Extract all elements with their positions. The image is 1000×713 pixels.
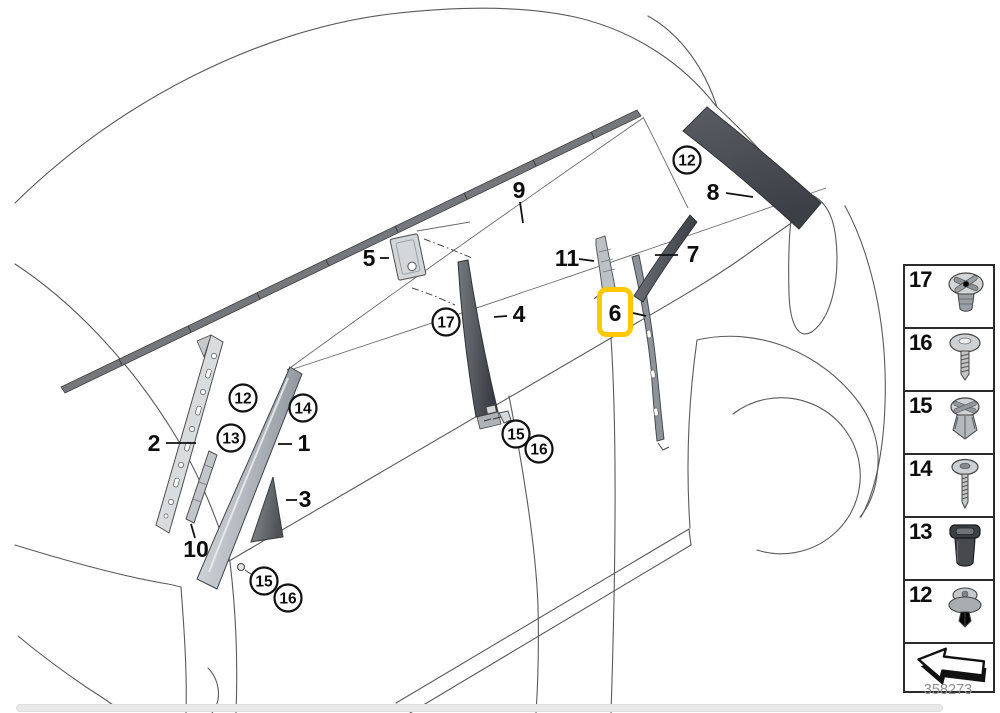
callout-circled-15-a-pillar[interactable]: 15 <box>251 568 278 595</box>
callout-5[interactable]: 5 <box>363 245 376 271</box>
legend-number: 12 <box>909 582 931 608</box>
front-door-cut <box>230 562 237 713</box>
expanding-rivet-icon <box>936 393 992 449</box>
legend-item-13[interactable]: 13 <box>905 518 993 581</box>
rear-door-cut <box>611 338 615 713</box>
callout-circled-13[interactable]: 13 <box>218 425 245 452</box>
svg-text:12: 12 <box>234 391 251 408</box>
push-rivet-icon <box>936 582 992 638</box>
callout-circled-14[interactable]: 14 <box>290 395 317 422</box>
svg-text:16: 16 <box>279 591 297 608</box>
svg-text:17: 17 <box>437 315 454 332</box>
legend-number: 15 <box>909 393 931 419</box>
grommet-nut-icon <box>936 267 992 323</box>
rear-wheel-arch <box>733 398 860 554</box>
legend-number: 13 <box>909 519 931 545</box>
legend-item-16[interactable]: 16 <box>905 329 993 392</box>
exploded-parts-drawing: 1 2 3 4 5 6 7 8 9 10 11 12 12 13 <box>0 0 1000 713</box>
rear-bumper-edge <box>845 206 885 517</box>
washer-head-screw-icon <box>936 330 992 386</box>
legend-number: 14 <box>909 456 931 482</box>
far-beltline <box>287 188 826 371</box>
rocker-sill <box>396 529 691 713</box>
callout-4[interactable]: 4 <box>513 301 526 327</box>
callout-circled-16-b-pillar[interactable]: 16 <box>526 436 553 463</box>
car-body-outline <box>15 8 885 713</box>
rubber-plug-icon <box>936 519 992 575</box>
callout-circled-16-a-pillar[interactable]: 16 <box>275 585 302 612</box>
callout-2[interactable]: 2 <box>148 430 161 456</box>
part-8-c-pillar-trim[interactable] <box>683 107 821 229</box>
legend-number: 17 <box>909 267 931 293</box>
part-2-bracket[interactable] <box>156 335 223 533</box>
legend-number: 16 <box>909 330 931 356</box>
callout-circled-12-a-pillar[interactable]: 12 <box>230 385 257 412</box>
svg-text:13: 13 <box>222 431 240 448</box>
callout-circled-15-b-pillar[interactable]: 15 <box>503 421 530 448</box>
parts-diagram-page: 1 2 3 4 5 6 7 8 9 10 11 12 12 13 <box>0 0 1000 713</box>
fasteners-legend: 17 16 15 <box>903 264 995 693</box>
rear-fender <box>688 336 878 528</box>
svg-text:15: 15 <box>507 427 525 444</box>
svg-text:16: 16 <box>530 442 548 459</box>
svg-text:12: 12 <box>678 153 695 170</box>
legend-item-14[interactable]: 14 <box>905 455 993 518</box>
horizontal-scrollbar[interactable] <box>16 704 943 712</box>
callout-9[interactable]: 9 <box>513 177 526 203</box>
legend-item-12[interactable]: 12 <box>905 581 993 644</box>
callout-8[interactable]: 8 <box>707 179 720 205</box>
part-4-b-pillar-trim[interactable] <box>458 260 501 429</box>
callout-circled-12-roof[interactable]: 12 <box>674 147 701 174</box>
drawing-number: 358273 <box>898 682 998 698</box>
callout-6-highlighted[interactable]: 6 <box>609 300 622 326</box>
callout-10[interactable]: 10 <box>183 536 209 562</box>
screw-with-washer-icon <box>936 456 992 512</box>
callout-1[interactable]: 1 <box>298 430 311 456</box>
svg-text:15: 15 <box>255 574 273 591</box>
svg-text:14: 14 <box>294 401 312 418</box>
callout-3[interactable]: 3 <box>299 486 312 512</box>
callout-11[interactable]: 11 <box>555 245 580 271</box>
legend-item-15[interactable]: 15 <box>905 392 993 455</box>
legend-item-17[interactable]: 17 <box>905 266 993 329</box>
callout-7[interactable]: 7 <box>687 241 700 267</box>
callout-circled-17[interactable]: 17 <box>433 309 460 336</box>
